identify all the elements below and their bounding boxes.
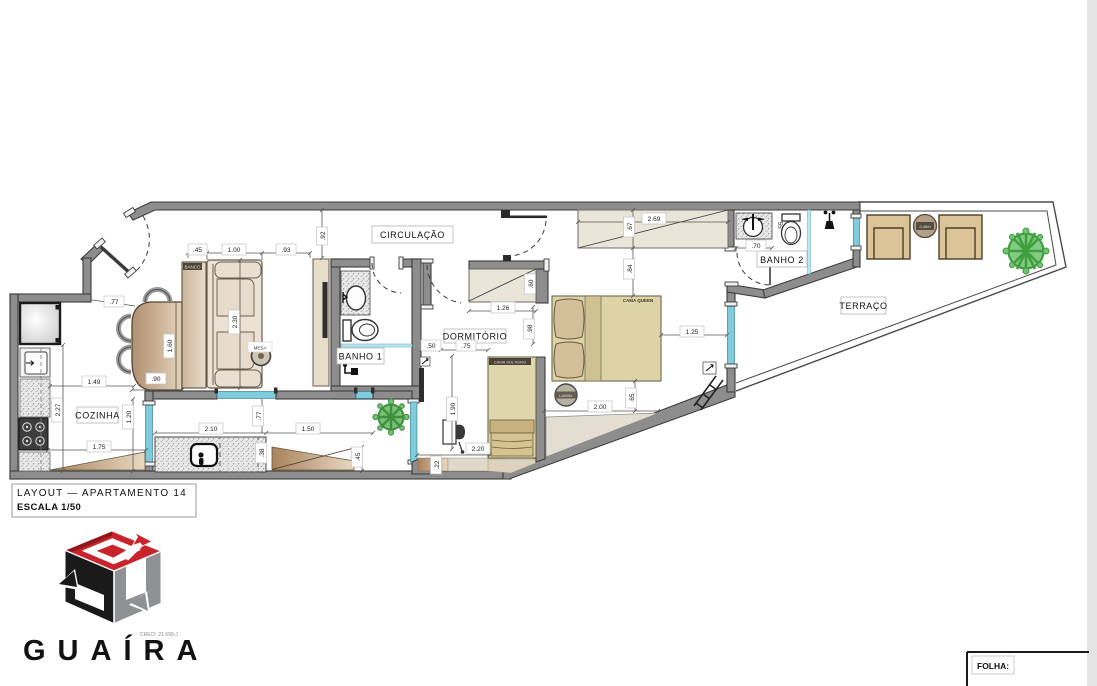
svg-text:MESA: MESA bbox=[254, 346, 267, 351]
svg-text:.75: .75 bbox=[461, 343, 470, 350]
svg-text:GUAÍRA: GUAÍRA bbox=[23, 633, 209, 667]
svg-text:.92: .92 bbox=[320, 231, 327, 240]
svg-text:.45: .45 bbox=[193, 247, 202, 254]
svg-text:.70: .70 bbox=[751, 243, 760, 250]
svg-text:.60: .60 bbox=[528, 279, 535, 288]
svg-text:1.00: 1.00 bbox=[228, 247, 241, 254]
svg-text:CAMA SOLTEIRO: CAMA SOLTEIRO bbox=[494, 360, 526, 365]
svg-text:1.49: 1.49 bbox=[88, 379, 101, 386]
svg-text:.77: .77 bbox=[256, 411, 263, 420]
svg-text:.67: .67 bbox=[627, 222, 634, 231]
svg-text:1.60: 1.60 bbox=[167, 339, 174, 352]
svg-text:CIRCULAÇÃO: CIRCULAÇÃO bbox=[380, 230, 445, 240]
svg-text:.98: .98 bbox=[527, 324, 534, 333]
svg-text:2.27: 2.27 bbox=[55, 403, 62, 416]
svg-text:.90: .90 bbox=[151, 376, 160, 383]
svg-text:1.26: 1.26 bbox=[497, 305, 510, 312]
svg-text:.84: .84 bbox=[627, 264, 634, 273]
svg-text:1.75: 1.75 bbox=[93, 444, 106, 451]
svg-text:0,40m: 0,40m bbox=[919, 224, 931, 229]
svg-text:.22: .22 bbox=[434, 460, 441, 469]
svg-text:.55: .55 bbox=[778, 221, 785, 230]
svg-text:BANHO 2: BANHO 2 bbox=[760, 255, 804, 265]
svg-text:2.10: 2.10 bbox=[205, 426, 218, 433]
svg-text:2.30: 2.30 bbox=[232, 315, 239, 328]
svg-text:.65: .65 bbox=[629, 393, 636, 402]
svg-text:ESCALA 1/50: ESCALA 1/50 bbox=[17, 502, 81, 513]
svg-text:1.50: 1.50 bbox=[302, 426, 315, 433]
svg-text:CAMA QUEEN: CAMA QUEEN bbox=[623, 298, 654, 303]
svg-text:2.00: 2.00 bbox=[594, 404, 607, 411]
svg-text:.77: .77 bbox=[109, 299, 118, 306]
svg-text:.93: .93 bbox=[281, 247, 290, 254]
svg-text:.38: .38 bbox=[259, 448, 266, 457]
svg-text:1.20: 1.20 bbox=[126, 410, 133, 423]
svg-text:2.69: 2.69 bbox=[648, 216, 661, 223]
svg-text:TERRAÇO: TERRAÇO bbox=[839, 301, 887, 311]
svg-text:1.90: 1.90 bbox=[450, 402, 457, 415]
svg-text:COZINHA: COZINHA bbox=[75, 411, 120, 421]
svg-text:.50: .50 bbox=[426, 343, 435, 350]
svg-text:.45: .45 bbox=[355, 452, 362, 461]
svg-text:LUMIN.: LUMIN. bbox=[559, 393, 573, 398]
svg-text:1.25: 1.25 bbox=[686, 329, 699, 336]
svg-text:FOLHA:: FOLHA: bbox=[977, 661, 1009, 671]
svg-text:BANCO: BANCO bbox=[184, 265, 201, 270]
svg-text:BANHO 1: BANHO 1 bbox=[339, 352, 383, 362]
svg-text:LAYOUT — APARTAMENTO 14: LAYOUT — APARTAMENTO 14 bbox=[17, 488, 187, 499]
svg-text:2.20: 2.20 bbox=[472, 446, 485, 453]
